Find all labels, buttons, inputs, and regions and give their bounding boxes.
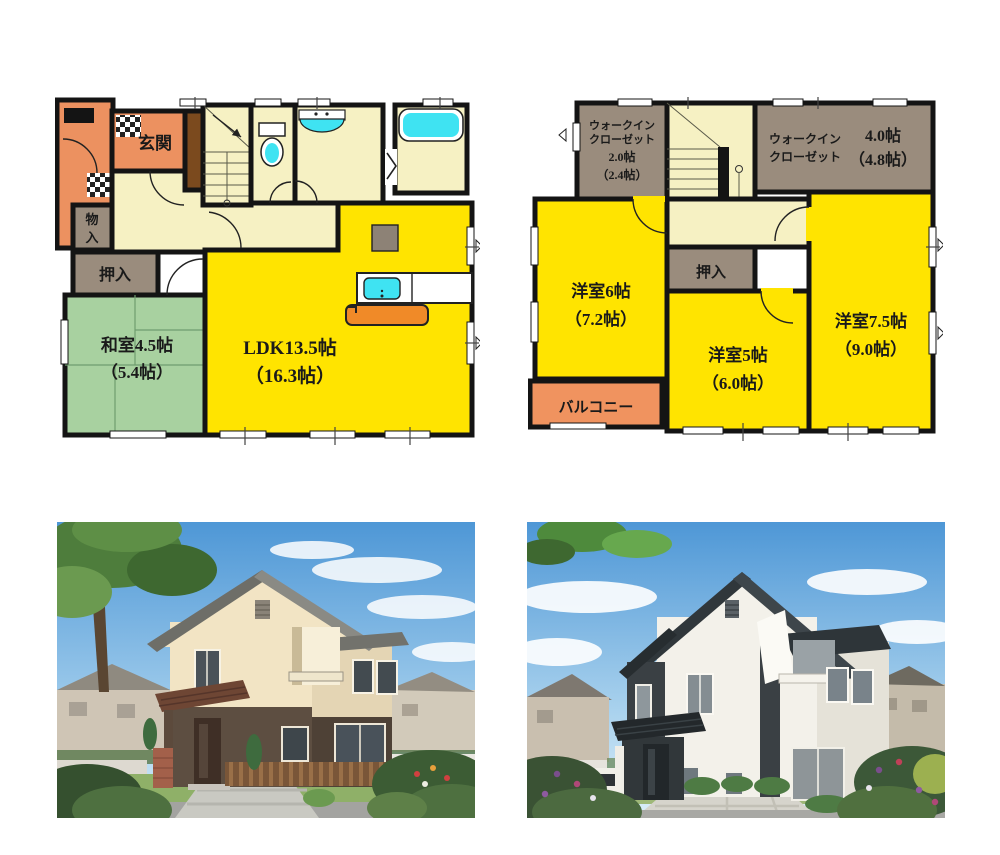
label-wic-large-size-2: （4.8帖）	[849, 150, 917, 169]
label-yoshitsu75-1: 洋室7.5帖	[835, 311, 907, 331]
door-step	[188, 784, 230, 790]
stairs-icon	[203, 105, 251, 206]
label-yoshitsu5-2: （6.0帖）	[702, 373, 774, 393]
shutter-mark-icon	[938, 239, 943, 251]
label-wic-small-3: 2.0帖	[608, 149, 635, 164]
appliance-square	[372, 225, 398, 251]
washitsu-door-arc	[167, 259, 203, 295]
label-wic-large-1: ウォークイン	[769, 132, 841, 146]
room-monoire: 物 入	[73, 205, 112, 250]
room-genkan: 玄関	[112, 111, 185, 171]
shoe-cabinet	[185, 111, 203, 190]
toilet-room	[251, 105, 295, 203]
washroom	[295, 105, 383, 203]
bathroom	[385, 105, 467, 193]
room-wic-large: ウォークイン クローゼット 4.0帖 （4.8帖）	[755, 103, 933, 192]
shutter-mark-icon	[938, 327, 943, 339]
room-yoshitsu5: 洋室5帖 （6.0帖）	[667, 291, 809, 431]
label-wic-small-4: （2.4帖）	[596, 167, 647, 182]
label-washitsu-1: 和室4.5帖	[101, 335, 173, 355]
label-monoire-2: 入	[85, 230, 98, 245]
balcony: バルコニー	[530, 381, 662, 429]
entrance-step-checker	[87, 173, 113, 197]
label-wic-small-1: ウォークイン	[589, 119, 655, 132]
door-gap	[633, 196, 665, 202]
porch-step-mark	[64, 108, 94, 123]
label-wic-large-2: クローゼット	[769, 149, 841, 164]
floor-plan-2f: ウォークイン クローゼット 2.0帖 （2.4帖） ウォークイン クローゼット …	[528, 97, 943, 449]
label-balcony: バルコニー	[559, 399, 634, 416]
exterior-rendering-left	[57, 522, 475, 818]
label-genkan: 玄関	[138, 133, 172, 153]
floor-plan-1f: 玄関	[55, 97, 480, 449]
listing-image: 玄関	[0, 0, 1000, 855]
exterior-rendering-right	[527, 522, 945, 818]
label-ldk-1: LDK13.5帖	[243, 336, 336, 359]
room-yoshitsu75: 洋室7.5帖 （9.0帖）	[809, 192, 933, 431]
kitchen-island	[346, 305, 428, 325]
label-yoshitsu75-2: （9.0帖）	[835, 339, 907, 359]
bathtub-icon	[399, 109, 463, 141]
label-yoshitsu5-1: 洋室5帖	[708, 345, 768, 365]
shutter-mark-icon	[476, 240, 480, 252]
label-monoire-1: 物	[85, 212, 98, 227]
label-ldk-2: （16.3帖）	[245, 364, 335, 387]
door-gap	[806, 207, 812, 241]
door-gap	[205, 209, 209, 245]
room-wic-small: ウォークイン クローゼット 2.0帖 （2.4帖）	[559, 103, 667, 199]
label-yoshitsu6-1: 洋室6帖	[571, 281, 631, 301]
stairs-icon-2f	[667, 103, 755, 199]
shutter-mark-icon	[559, 129, 566, 141]
label-washitsu-2: （5.4帖）	[101, 362, 173, 382]
hall-2f	[667, 199, 809, 247]
door-gap	[761, 288, 793, 294]
label-yoshitsu6-2: （7.2帖）	[565, 309, 637, 329]
label-wic-small-2: クローゼット	[589, 132, 655, 146]
room-oshiire-2f: 押入	[667, 247, 755, 291]
kitchen-counter	[357, 273, 472, 303]
room-washitsu: 和室4.5帖 （5.4帖）	[65, 295, 205, 435]
balcony-niche	[289, 627, 343, 685]
room-oshiire-1f: 押入	[73, 252, 158, 295]
toilet-icon	[259, 123, 285, 166]
entrance-door	[643, 744, 669, 800]
label-wic-large-size-1: 4.0帖	[865, 126, 901, 145]
label-oshiire-1f: 押入	[99, 265, 131, 284]
label-oshiire-2f: 押入	[696, 263, 726, 281]
